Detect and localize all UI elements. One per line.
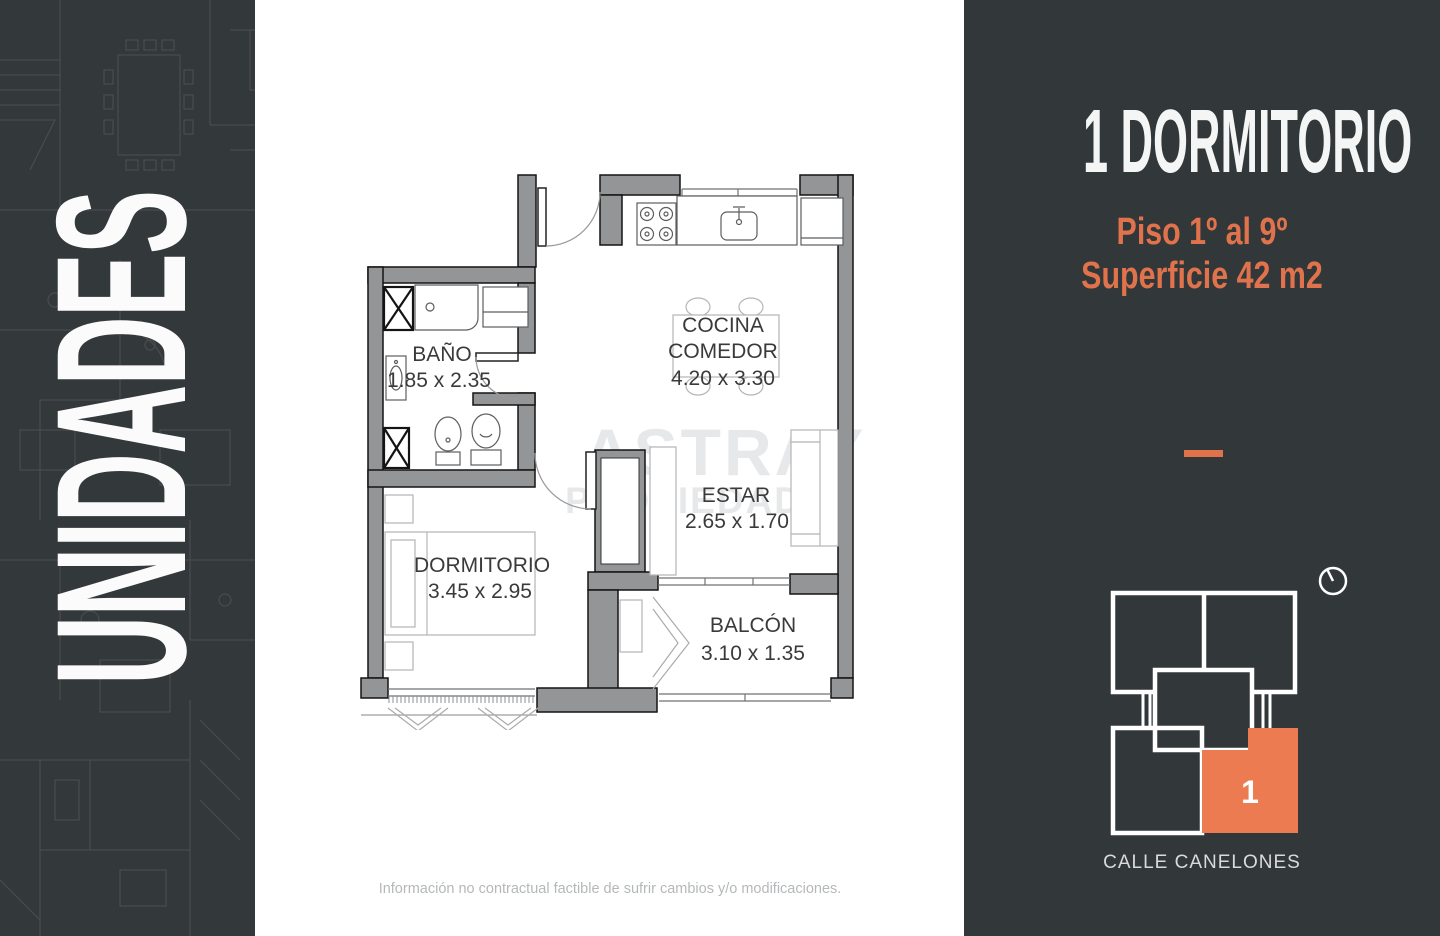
keyplan-stub-right [1263, 692, 1270, 728]
disclaimer-text: Información no contractual factible de s… [255, 881, 965, 897]
wall [831, 678, 853, 698]
wall [518, 175, 536, 267]
fridge [801, 198, 843, 245]
kitchen-fixtures-group [637, 196, 843, 245]
unit-surface: Superficie 42 m2 [1012, 254, 1393, 298]
room-dims-estar: 2.65 x 1.70 [685, 510, 789, 533]
shaft-x-box [384, 428, 409, 468]
wall [588, 572, 658, 590]
sofa [791, 430, 838, 546]
unit-title: 1 DORMITORIO [1083, 96, 1321, 188]
bath-cabinet [483, 287, 528, 327]
balcony-door-symbol [653, 597, 689, 689]
unit-sheet-page: { "left_panel": { "vertical_label": "UNI… [0, 0, 1440, 936]
wall [368, 470, 535, 487]
awning-symbol [478, 708, 538, 730]
wall [537, 688, 657, 712]
room-label-dormitorio: DORMITORIO [414, 554, 550, 577]
unidades-vertical-title: UNIDADES [42, 178, 202, 698]
left-sidebar: UNIDADES [0, 0, 255, 936]
room-label-bano: BAÑO [412, 342, 472, 366]
entry-door-arc [546, 192, 600, 246]
floor-plan: BAÑO 1.85 x 2.35 COCINA COMEDOR 4.20 x 3… [355, 160, 885, 730]
keyplan-unit-2 [1113, 728, 1202, 833]
wall [790, 574, 838, 594]
balcony-cabinet [620, 600, 642, 652]
estar-cabinet [650, 447, 676, 575]
accent-dash [1184, 450, 1223, 457]
room-dims-dormitorio: 3.45 x 2.95 [428, 580, 532, 603]
room-dims-cocina: 4.20 x 3.30 [671, 367, 775, 390]
room-label-cocina: COCINA [682, 314, 764, 337]
pocket-inner [601, 458, 639, 564]
wall [838, 175, 853, 678]
kitchen-sink [721, 207, 757, 240]
compass-icon [1320, 568, 1346, 594]
keyplan-unit-number: 1 [1241, 774, 1259, 810]
awning-symbol [388, 708, 448, 730]
shaft-x-box [384, 287, 413, 330]
bedroom-door-leaf [586, 452, 596, 509]
room-label-estar: ESTAR [702, 484, 770, 507]
wall [368, 267, 535, 283]
room-dims-bano: 1.85 x 2.35 [387, 369, 491, 392]
bidet [435, 417, 461, 465]
keyplan-stub-left [1143, 692, 1150, 728]
bath-door-leaf [476, 353, 518, 361]
wall [588, 590, 618, 693]
wall [361, 678, 388, 698]
bedroom-door-arc [535, 453, 591, 509]
wall [473, 393, 535, 405]
unit-subtitle: Piso 1º al 9º Superficie 42 m2 [1012, 210, 1393, 298]
toilet [471, 414, 501, 465]
room-label-balcon: BALCÓN [710, 614, 796, 637]
shower [415, 285, 478, 330]
entry-door-leaf [538, 188, 546, 246]
wall [600, 195, 622, 245]
key-plan: 1 [1100, 565, 1400, 865]
wall [600, 175, 680, 195]
room-label-comedor: COMEDOR [668, 340, 778, 363]
unit-floors: Piso 1º al 9º [1012, 210, 1393, 254]
room-dims-balcon: 3.10 x 1.35 [701, 642, 805, 665]
stove [637, 203, 676, 245]
street-label: CALLE CANELONES [964, 852, 1440, 874]
